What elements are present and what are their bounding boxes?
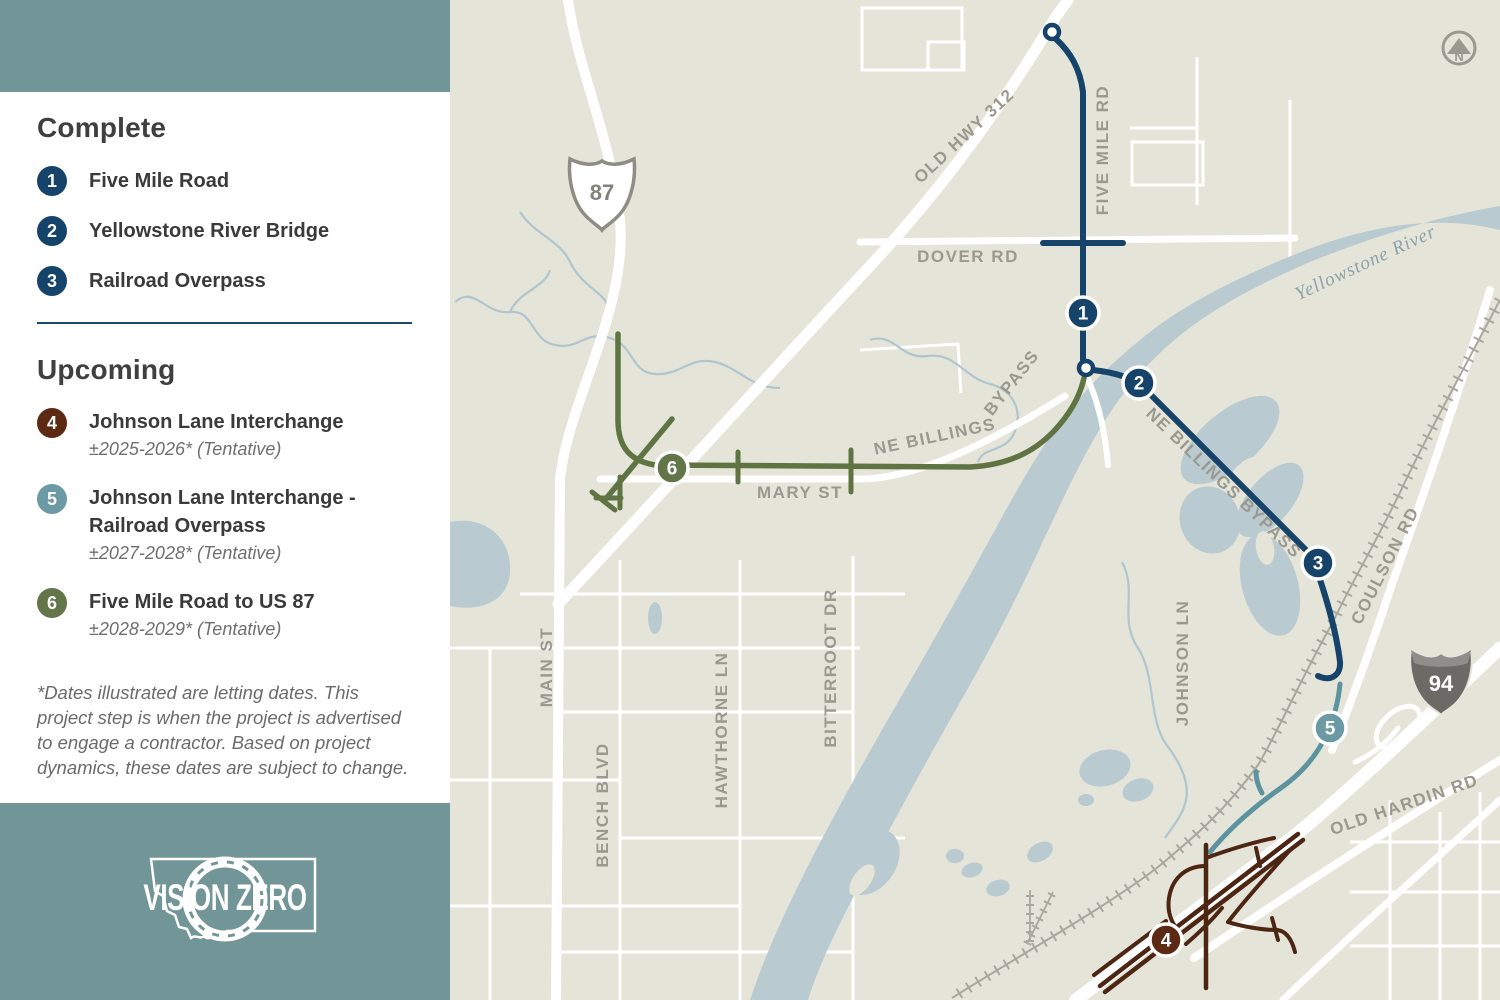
marker-6-badge: 6 xyxy=(37,588,67,618)
road-label-mary-st: MARY ST xyxy=(757,483,843,502)
map-marker-1-number: 1 xyxy=(1078,304,1089,325)
i94-number: 94 xyxy=(1429,671,1454,696)
vision-zero-project-map: Complete 1 Five Mile Road 2 Yellowstone … xyxy=(0,0,1500,1000)
map-marker-3: 3 xyxy=(1302,547,1334,579)
map-marker-5: 5 xyxy=(1314,712,1346,744)
road-label-bitterroot-dr: BITTERROOT DR xyxy=(821,588,840,747)
us87-number: 87 xyxy=(590,180,614,205)
map-marker-6-number: 6 xyxy=(667,459,678,480)
legend-item-five-mile-to-us87: 6 Five Mile Road to US 87 ±2028-2029* (T… xyxy=(37,588,419,640)
legend-item-label: Johnson Lane Interchange xyxy=(89,408,343,436)
vision-zero-logo: VISION ZERO xyxy=(115,839,335,965)
north-arrow-label: N xyxy=(1454,49,1463,64)
road-label-hawthorne-ln: HAWTHORNE LN xyxy=(712,652,731,809)
road-label-bench-blvd: BENCH BLVD xyxy=(593,742,612,867)
marker-4-badge: 4 xyxy=(37,408,67,438)
legend-item-railroad-overpass: 3 Railroad Overpass xyxy=(37,266,419,296)
sidebar-top-band xyxy=(0,0,450,92)
legend-item-johnson-lane-interchange: 4 Johnson Lane Interchange ±2025-2026* (… xyxy=(37,408,419,460)
sidebar-bottom-band: VISION ZERO xyxy=(0,803,450,1000)
legend-item-date: ±2028-2029* (Tentative) xyxy=(89,619,315,640)
complete-section-title: Complete xyxy=(37,112,419,144)
map-marker-4: 4 xyxy=(1150,924,1182,956)
logo-wordmark: VISION ZERO xyxy=(143,876,306,918)
upcoming-section-title: Upcoming xyxy=(37,354,419,386)
legend-content: Complete 1 Five Mile Road 2 Yellowstone … xyxy=(37,112,419,781)
project-map: OLD HWY 312 FIVE MILE RD DOVER RD NE BIL… xyxy=(450,0,1500,1000)
legend-divider xyxy=(37,322,412,324)
legend-item-label: Five Mile Road to US 87 xyxy=(89,588,315,616)
marker-1-badge: 1 xyxy=(37,166,67,196)
marker-2-badge: 2 xyxy=(37,216,67,246)
legend-item-johnson-lane-railroad-overpass: 5 Johnson Lane Interchange - Railroad Ov… xyxy=(37,484,419,564)
map-marker-6: 6 xyxy=(656,452,688,484)
map-marker-2: 2 xyxy=(1123,367,1155,399)
marker-5-badge: 5 xyxy=(37,484,67,514)
legend-item-label: Johnson Lane Interchange - Railroad Over… xyxy=(89,484,389,540)
map-canvas: OLD HWY 312 FIVE MILE RD DOVER RD NE BIL… xyxy=(450,0,1500,1000)
legend-item-label: Yellowstone River Bridge xyxy=(89,217,329,245)
roundabout-bypass-junction xyxy=(1079,361,1093,375)
map-marker-3-number: 3 xyxy=(1313,554,1324,575)
legend-item-date: ±2025-2026* (Tentative) xyxy=(89,439,343,460)
map-marker-5-number: 5 xyxy=(1325,719,1336,740)
map-marker-1: 1 xyxy=(1067,297,1099,329)
legend-item-label: Railroad Overpass xyxy=(89,267,266,295)
legend-item-yellowstone-river-bridge: 2 Yellowstone River Bridge xyxy=(37,216,419,246)
marker-3-badge: 3 xyxy=(37,266,67,296)
dates-footnote: *Dates illustrated are letting dates. Th… xyxy=(37,680,415,781)
road-label-dover-rd: DOVER RD xyxy=(917,247,1019,266)
legend-item-five-mile-road: 1 Five Mile Road xyxy=(37,166,419,196)
map-marker-4-number: 4 xyxy=(1161,931,1172,952)
map-marker-2-number: 2 xyxy=(1134,374,1145,395)
legend-item-label: Five Mile Road xyxy=(89,167,229,195)
legend-item-date: ±2027-2028* (Tentative) xyxy=(89,543,389,564)
legend-sidebar: Complete 1 Five Mile Road 2 Yellowstone … xyxy=(0,0,450,1000)
road-label-main-st: MAIN ST xyxy=(537,627,556,707)
road-label-five-mile-rd: FIVE MILE RD xyxy=(1093,85,1112,215)
road-label-johnson-ln: JOHNSON LN xyxy=(1173,600,1192,726)
roundabout-north xyxy=(1045,25,1059,39)
